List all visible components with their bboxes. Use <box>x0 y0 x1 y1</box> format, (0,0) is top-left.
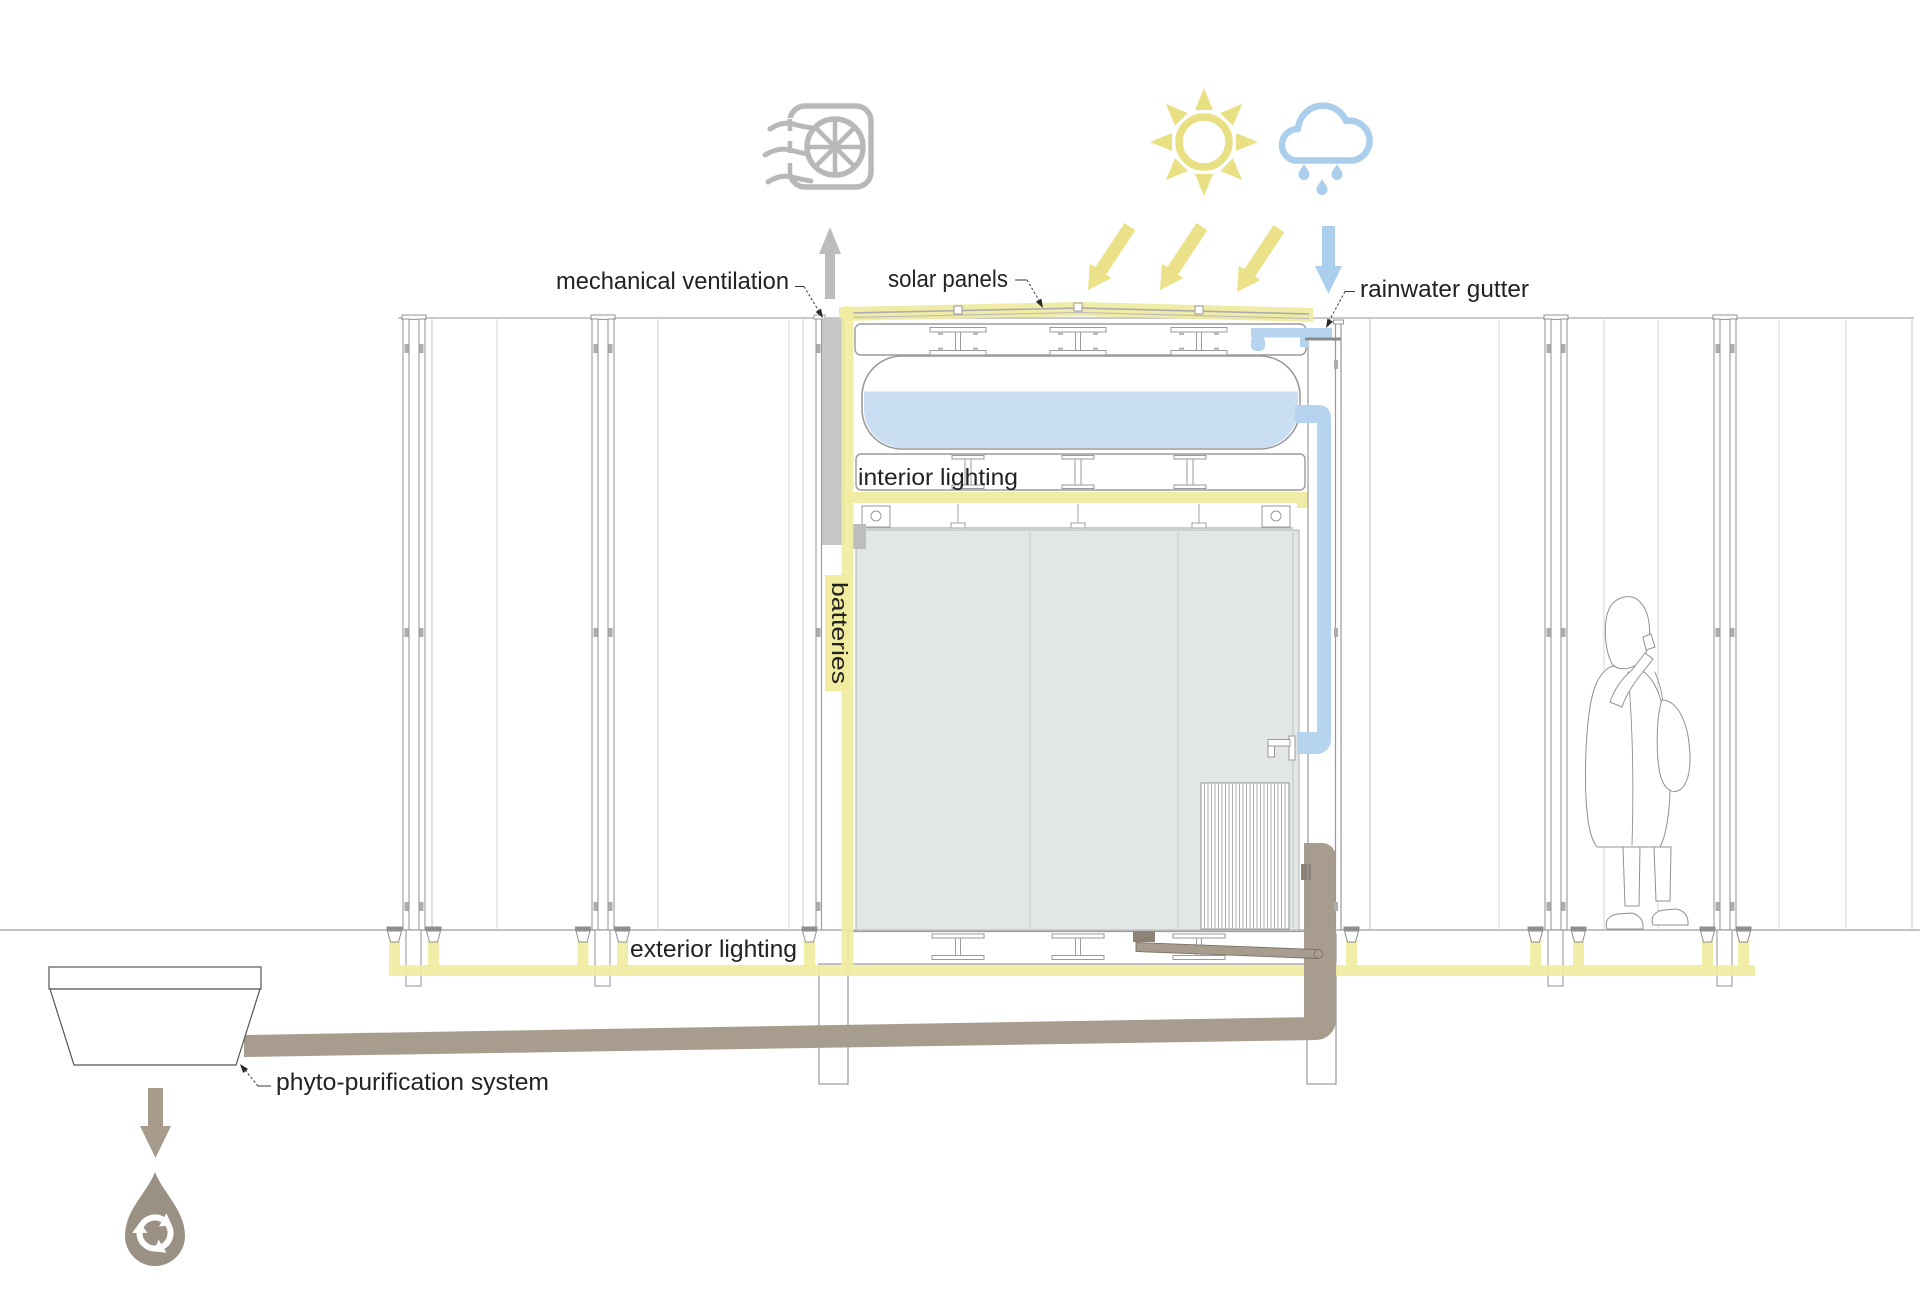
svg-text:solar panels: solar panels <box>888 266 1008 293</box>
svg-text:batteries: batteries <box>827 582 852 684</box>
svg-text:phyto-purification system: phyto-purification system <box>276 1069 549 1096</box>
svg-text:mechanical ventilation: mechanical ventilation <box>556 268 789 295</box>
svg-text:rainwater gutter: rainwater gutter <box>1360 276 1529 303</box>
svg-text:interior lighting: interior lighting <box>858 464 1018 490</box>
svg-text:exterior lighting: exterior lighting <box>630 936 797 963</box>
